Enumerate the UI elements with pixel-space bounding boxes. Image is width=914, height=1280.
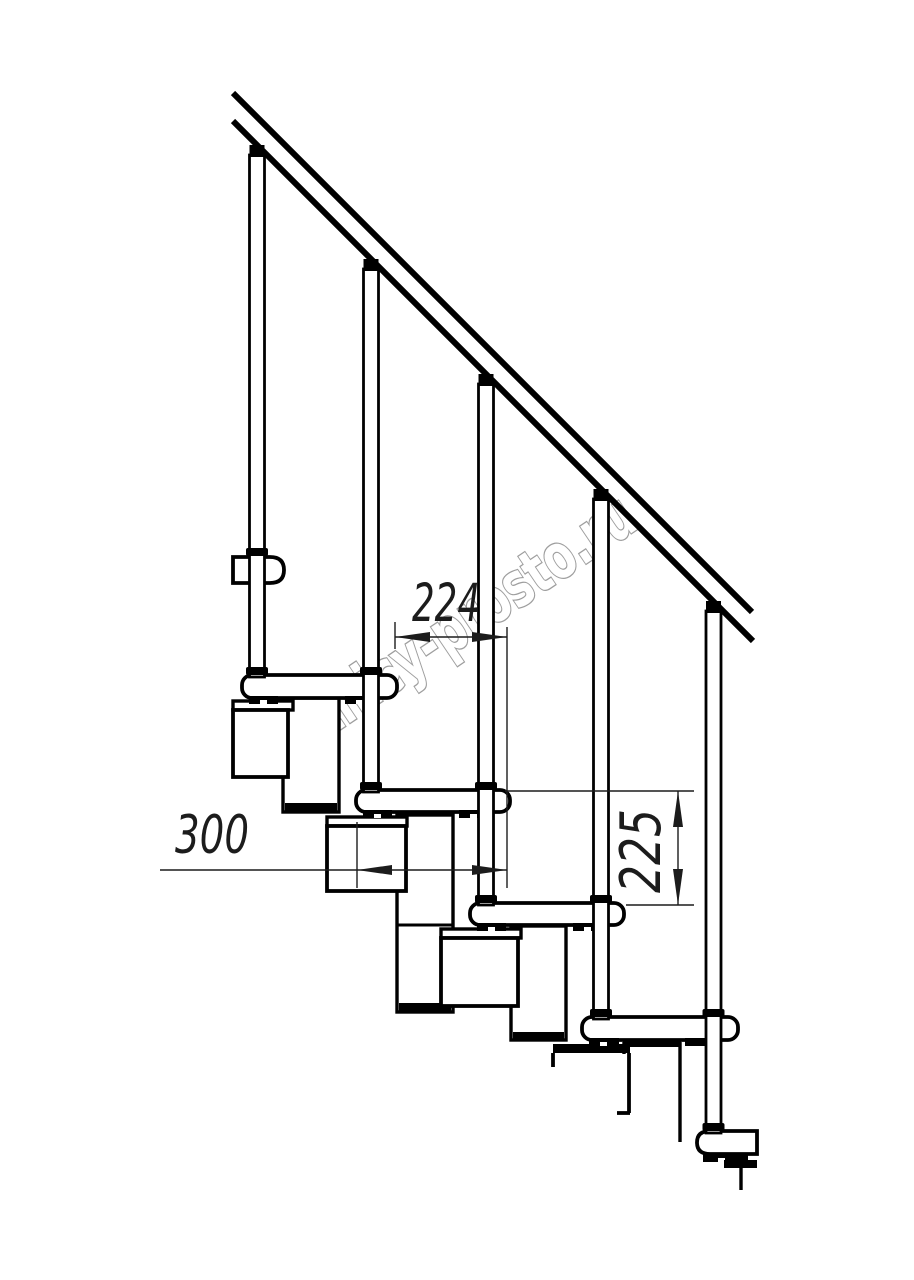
staircase-drawing-page: lestnicy-prosto.ru <box>0 0 914 1280</box>
baluster-2 <box>360 259 382 792</box>
dimension-run-label: 224 <box>412 573 480 634</box>
module-box-2 <box>327 817 407 891</box>
dimension-depth-label: 300 <box>175 805 249 866</box>
baluster-1 <box>246 145 268 677</box>
dimension-rise-label: 225 <box>609 809 674 893</box>
module-box-3 <box>441 929 521 1006</box>
technical-drawing-svg: lestnicy-prosto.ru <box>0 0 914 1280</box>
module-connector-1 <box>283 698 339 812</box>
module-box-1 <box>233 701 293 777</box>
baluster-5 <box>703 601 725 1133</box>
baluster-4 <box>590 489 612 1019</box>
